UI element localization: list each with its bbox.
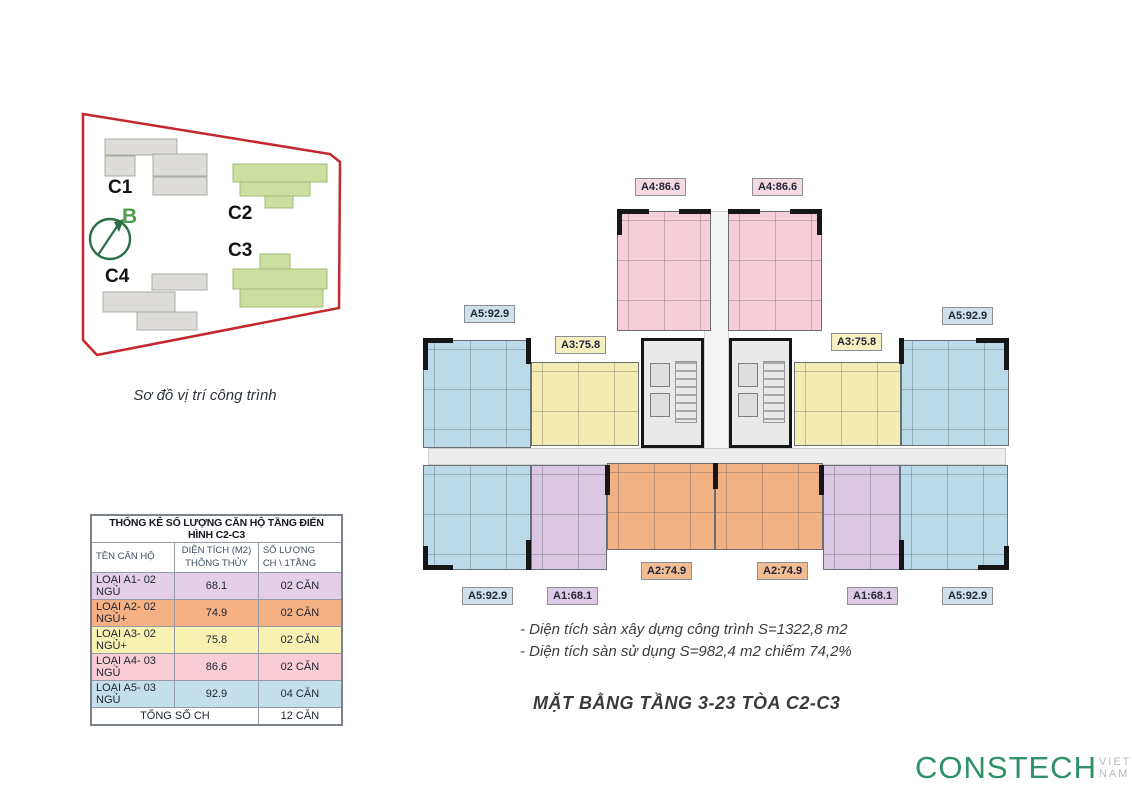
table-row: LOẠI A3- 02 NGỦ+ 75.8 02 CĂN: [91, 627, 342, 654]
wall-segment: [526, 540, 531, 570]
note-construction-area: - Diện tích sàn xây dựng công trình S=13…: [520, 621, 848, 638]
wall-segment: [605, 465, 610, 495]
unit-label-a3: A3:75.8: [555, 336, 606, 354]
count-cell: 02 CĂN: [258, 573, 342, 600]
table-row: LOẠI A5- 03 NGỦ 92.9 04 CĂN: [91, 681, 342, 708]
col-header-count: SỐ LƯỢNG CH \ 1TẦNG: [258, 543, 342, 573]
wall-segment: [899, 338, 904, 364]
site-caption: Sơ đồ vị trí công trình: [133, 387, 276, 404]
unit-label-a5: A5:92.9: [464, 305, 515, 323]
apartment-a2-right: [715, 463, 823, 550]
total-label: TỔNG SỐ CH: [91, 708, 258, 725]
site-building-c2: [233, 164, 327, 208]
logo-brand-text: CONSTECH: [915, 752, 1097, 783]
site-building-c3: [233, 254, 327, 307]
stairs-icon: [675, 361, 697, 423]
wall-segment: [617, 209, 622, 235]
core-left: [641, 338, 704, 448]
lift-icon: [650, 393, 670, 417]
apartment-a5-top-left: [423, 340, 531, 448]
apartment-a5-top-right: [901, 340, 1009, 446]
unit-label-a2: A2:74.9: [641, 562, 692, 580]
lift-icon: [738, 393, 758, 417]
unit-label-a5: A5:92.9: [942, 307, 993, 325]
unit-type-cell: LOẠI A2- 02 NGỦ+: [91, 600, 175, 627]
wall-segment: [526, 338, 531, 364]
table-header-row: TÊN CĂN HỘ DIỆN TÍCH (M2) THÔNG THỦY SỐ …: [91, 543, 342, 573]
lift-icon: [650, 363, 670, 387]
area-cell: 68.1: [175, 573, 259, 600]
site-label-c4: C4: [105, 266, 130, 287]
wall-segment: [899, 540, 904, 570]
wall-segment: [713, 463, 718, 489]
col-header-name: TÊN CĂN HỘ: [91, 543, 175, 573]
unit-label-a1: A1:68.1: [547, 587, 598, 605]
col-header-area: DIỆN TÍCH (M2) THÔNG THỦY: [175, 543, 259, 573]
table-title: THỐNG KÊ SỐ LƯỢNG CĂN HỘ TẦNG ĐIỂN HÌNH …: [91, 515, 342, 543]
wall-segment: [423, 565, 453, 570]
table-total-row: TỔNG SỐ CH 12 CĂN: [91, 708, 342, 725]
apartment-a1-right: [823, 465, 900, 570]
wall-segment: [819, 465, 824, 495]
constech-logo: CONSTECH VIET NAM: [915, 752, 1132, 783]
compass-north-label: B: [122, 205, 137, 228]
total-value: 12 CĂN: [258, 708, 342, 725]
unit-label-a2: A2:74.9: [757, 562, 808, 580]
site-label-c1: C1: [108, 177, 133, 198]
area-cell: 74.9: [175, 600, 259, 627]
site-label-c3: C3: [228, 240, 252, 261]
apartment-a5-bottom-right: [900, 465, 1008, 570]
wall-segment: [976, 338, 1006, 343]
wall-segment: [817, 209, 822, 235]
plan-title: MẶT BẰNG TẦNG 3-23 TÒA C2-C3: [533, 693, 840, 714]
apartment-a5-bottom-left: [423, 465, 531, 570]
apartment-a4-right: [728, 211, 822, 331]
area-cell: 92.9: [175, 681, 259, 708]
apartment-a4-left: [617, 211, 711, 331]
table-row: LOẠI A4- 03 NGỦ 86.6 02 CĂN: [91, 654, 342, 681]
apartment-a3-left: [531, 362, 639, 446]
unit-label-a4: A4:86.6: [752, 178, 803, 196]
table-row: LOẠI A1- 02 NGỦ 68.1 02 CĂN: [91, 573, 342, 600]
count-cell: 02 CĂN: [258, 600, 342, 627]
unit-label-a4: A4:86.6: [635, 178, 686, 196]
apartment-a2-left: [607, 463, 715, 550]
unit-type-cell: LOẠI A4- 03 NGỦ: [91, 654, 175, 681]
wall-segment: [679, 209, 711, 214]
unit-label-a1: A1:68.1: [847, 587, 898, 605]
floor-plan: A4:86.6 A4:86.6 A5:92.9 A3:75.8 A3:75.8 …: [420, 150, 1020, 620]
area-cell: 86.6: [175, 654, 259, 681]
apartment-a3-right: [794, 362, 901, 446]
unit-label-a5: A5:92.9: [462, 587, 513, 605]
area-cell: 75.8: [175, 627, 259, 654]
table-row: LOẠI A2- 02 NGỦ+ 74.9 02 CĂN: [91, 600, 342, 627]
apartment-a1-left: [531, 465, 607, 570]
count-cell: 02 CĂN: [258, 627, 342, 654]
wall-segment: [728, 209, 760, 214]
count-cell: 04 CĂN: [258, 681, 342, 708]
site-label-c2: C2: [228, 203, 252, 224]
wall-segment: [423, 338, 453, 343]
unit-label-a5: A5:92.9: [942, 587, 993, 605]
unit-type-cell: LOẠI A5- 03 NGỦ: [91, 681, 175, 708]
unit-label-a3: A3:75.8: [831, 333, 882, 351]
site-location-diagram: C1 C2 C3 C4 B Sơ đồ vị trí công trình: [60, 92, 360, 422]
unit-type-cell: LOẠI A1- 02 NGỦ: [91, 573, 175, 600]
stairs-icon: [763, 361, 785, 423]
note-usable-area: - Diện tích sàn sử dụng S=982,4 m2 chiếm…: [520, 643, 852, 660]
logo-region-text: VIET NAM: [1099, 756, 1132, 780]
lift-icon: [738, 363, 758, 387]
page: C1 C2 C3 C4 B Sơ đồ vị trí công trình TH…: [0, 0, 1132, 800]
count-cell: 02 CĂN: [258, 654, 342, 681]
wall-segment: [978, 565, 1009, 570]
apartment-stats-table: THỐNG KÊ SỐ LƯỢNG CĂN HỘ TẦNG ĐIỂN HÌNH …: [90, 514, 343, 726]
unit-type-cell: LOẠI A3- 02 NGỦ+: [91, 627, 175, 654]
core-right: [729, 338, 792, 448]
